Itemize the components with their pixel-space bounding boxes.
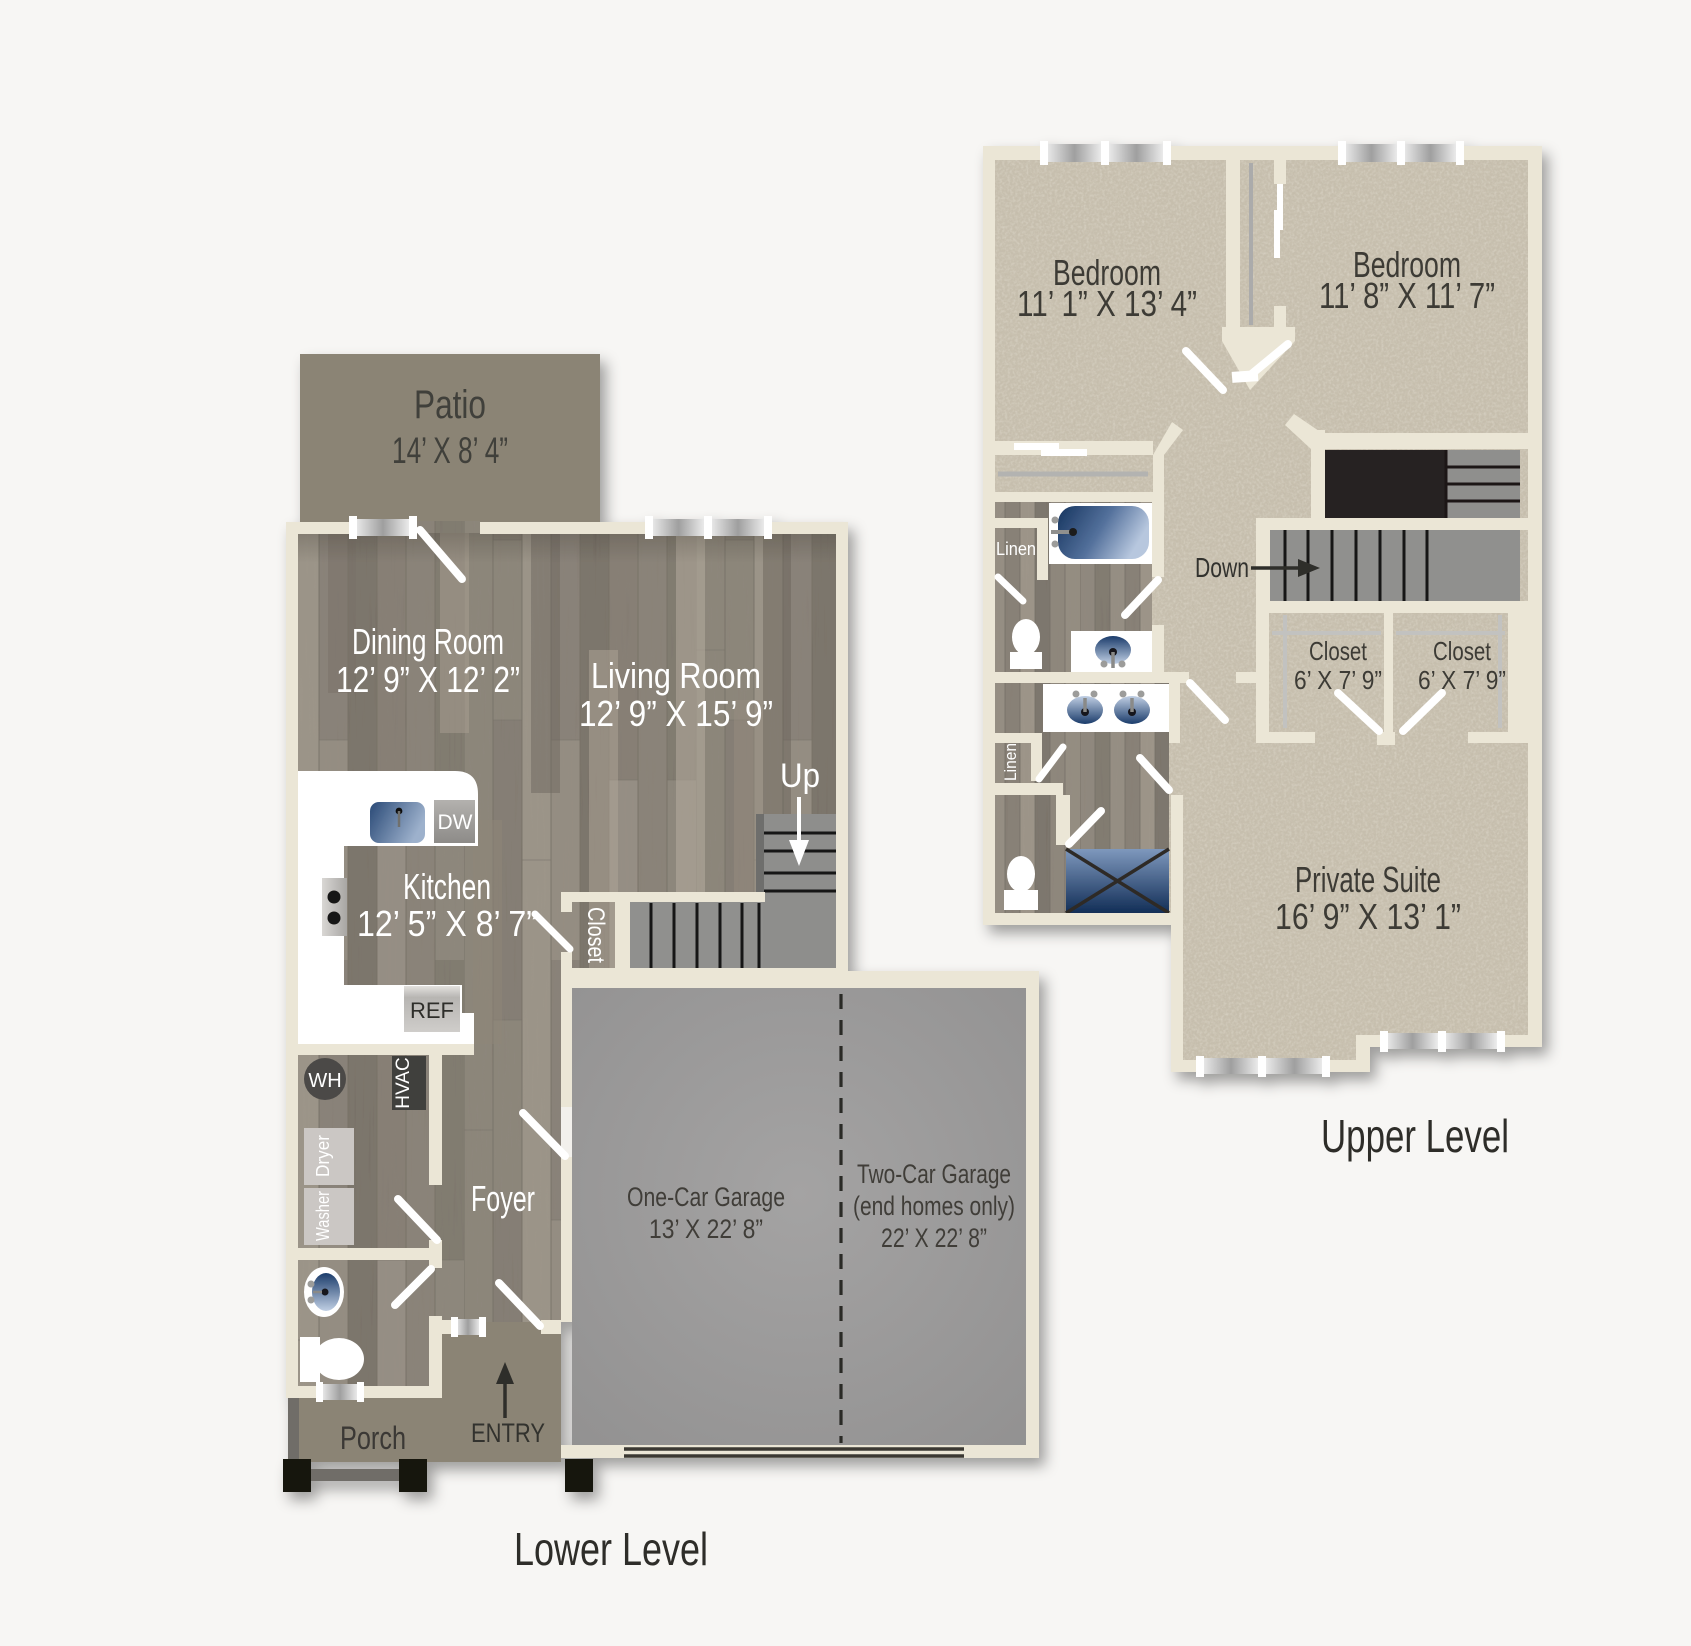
svg-text:ENTRY: ENTRY	[471, 1418, 545, 1448]
svg-text:14’ X 8’ 4”: 14’ X 8’ 4”	[392, 430, 508, 471]
svg-text:12’ 9” X 12’ 2”: 12’ 9” X 12’ 2”	[336, 659, 520, 700]
svg-text:Up: Up	[780, 757, 820, 795]
svg-text:22’ X 22’ 8”: 22’ X 22’ 8”	[881, 1223, 987, 1253]
svg-text:12’ 9” X 15’ 9”: 12’ 9” X 15’ 9”	[579, 693, 773, 734]
svg-text:12’ 5” X 8’ 7”: 12’ 5” X 8’ 7”	[357, 903, 537, 944]
svg-text:Two-Car Garage: Two-Car Garage	[857, 1159, 1011, 1189]
svg-text:Kitchen: Kitchen	[403, 866, 491, 907]
svg-text:13’ X 22’ 8”: 13’ X 22’ 8”	[649, 1214, 763, 1244]
svg-text:Living Room: Living Room	[591, 655, 761, 696]
svg-text:HVAC: HVAC	[393, 1057, 414, 1108]
svg-text:Down: Down	[1195, 552, 1249, 583]
svg-text:Patio: Patio	[414, 383, 486, 427]
svg-text:11’ 1” X 13’ 4”: 11’ 1” X 13’ 4”	[1017, 283, 1197, 324]
svg-text:Washer: Washer	[313, 1191, 333, 1241]
svg-text:Dryer: Dryer	[313, 1135, 333, 1177]
svg-text:Closet: Closet	[1309, 636, 1368, 666]
svg-text:Private Suite: Private Suite	[1295, 859, 1441, 900]
svg-text:6’ X 7’ 9”: 6’ X 7’ 9”	[1418, 665, 1506, 695]
svg-text:One-Car Garage: One-Car Garage	[627, 1182, 785, 1212]
svg-text:Porch: Porch	[340, 1420, 406, 1456]
svg-text:WH: WH	[308, 1070, 341, 1092]
svg-text:DW: DW	[438, 811, 473, 834]
svg-text:Lower Level: Lower Level	[514, 1523, 708, 1575]
svg-text:Linen: Linen	[1001, 743, 1020, 781]
svg-text:Dining Room: Dining Room	[352, 621, 504, 662]
svg-text:REF: REF	[410, 998, 454, 1023]
svg-text:Linen: Linen	[996, 539, 1036, 559]
svg-text:Closet: Closet	[582, 907, 609, 963]
svg-text:16’ 9” X 13’ 1”: 16’ 9” X 13’ 1”	[1275, 896, 1461, 937]
svg-text:(end homes only): (end homes only)	[853, 1191, 1015, 1221]
svg-text:Foyer: Foyer	[471, 1178, 535, 1219]
svg-text:6’ X 7’ 9”: 6’ X 7’ 9”	[1294, 665, 1382, 695]
svg-text:11’ 8” X 11’ 7”: 11’ 8” X 11’ 7”	[1319, 275, 1495, 316]
svg-text:Closet: Closet	[1433, 636, 1492, 666]
svg-text:Upper Level: Upper Level	[1321, 1110, 1509, 1162]
